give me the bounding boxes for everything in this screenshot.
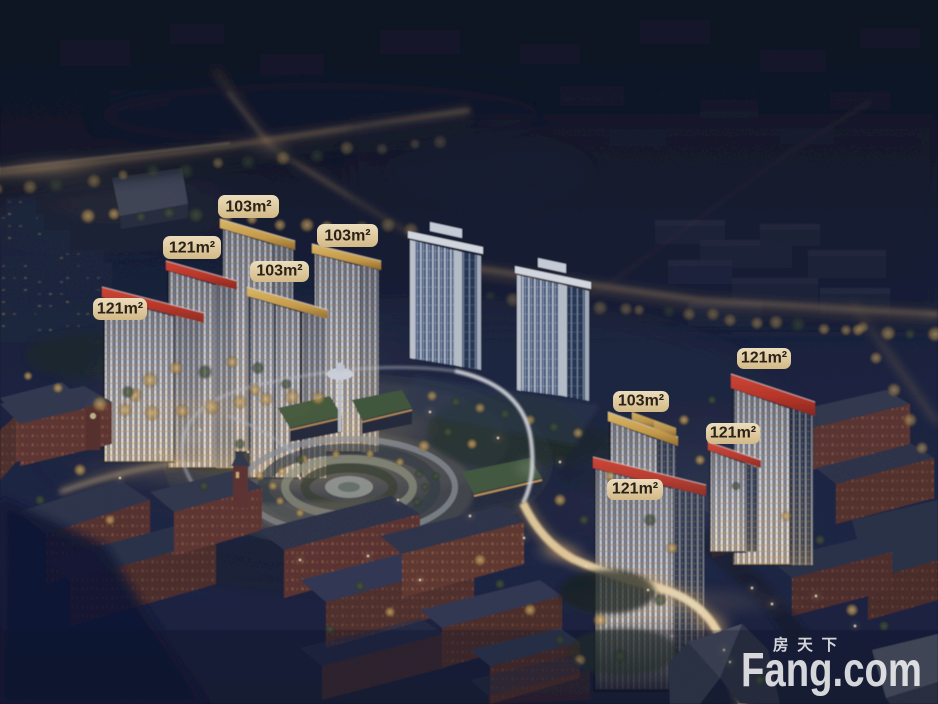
- svg-text:103m²: 103m²: [324, 228, 370, 245]
- svg-text:103m²: 103m²: [225, 199, 271, 216]
- svg-text:121m²: 121m²: [741, 350, 787, 367]
- svg-text:103m²: 103m²: [256, 263, 302, 280]
- svg-text:121m²: 121m²: [612, 481, 658, 498]
- svg-text:Fang.com: Fang.com: [741, 644, 922, 697]
- svg-text:121m²: 121m²: [97, 301, 143, 318]
- svg-text:121m²: 121m²: [169, 240, 215, 257]
- svg-text:121m²: 121m²: [710, 425, 756, 442]
- svg-text:103m²: 103m²: [618, 393, 664, 410]
